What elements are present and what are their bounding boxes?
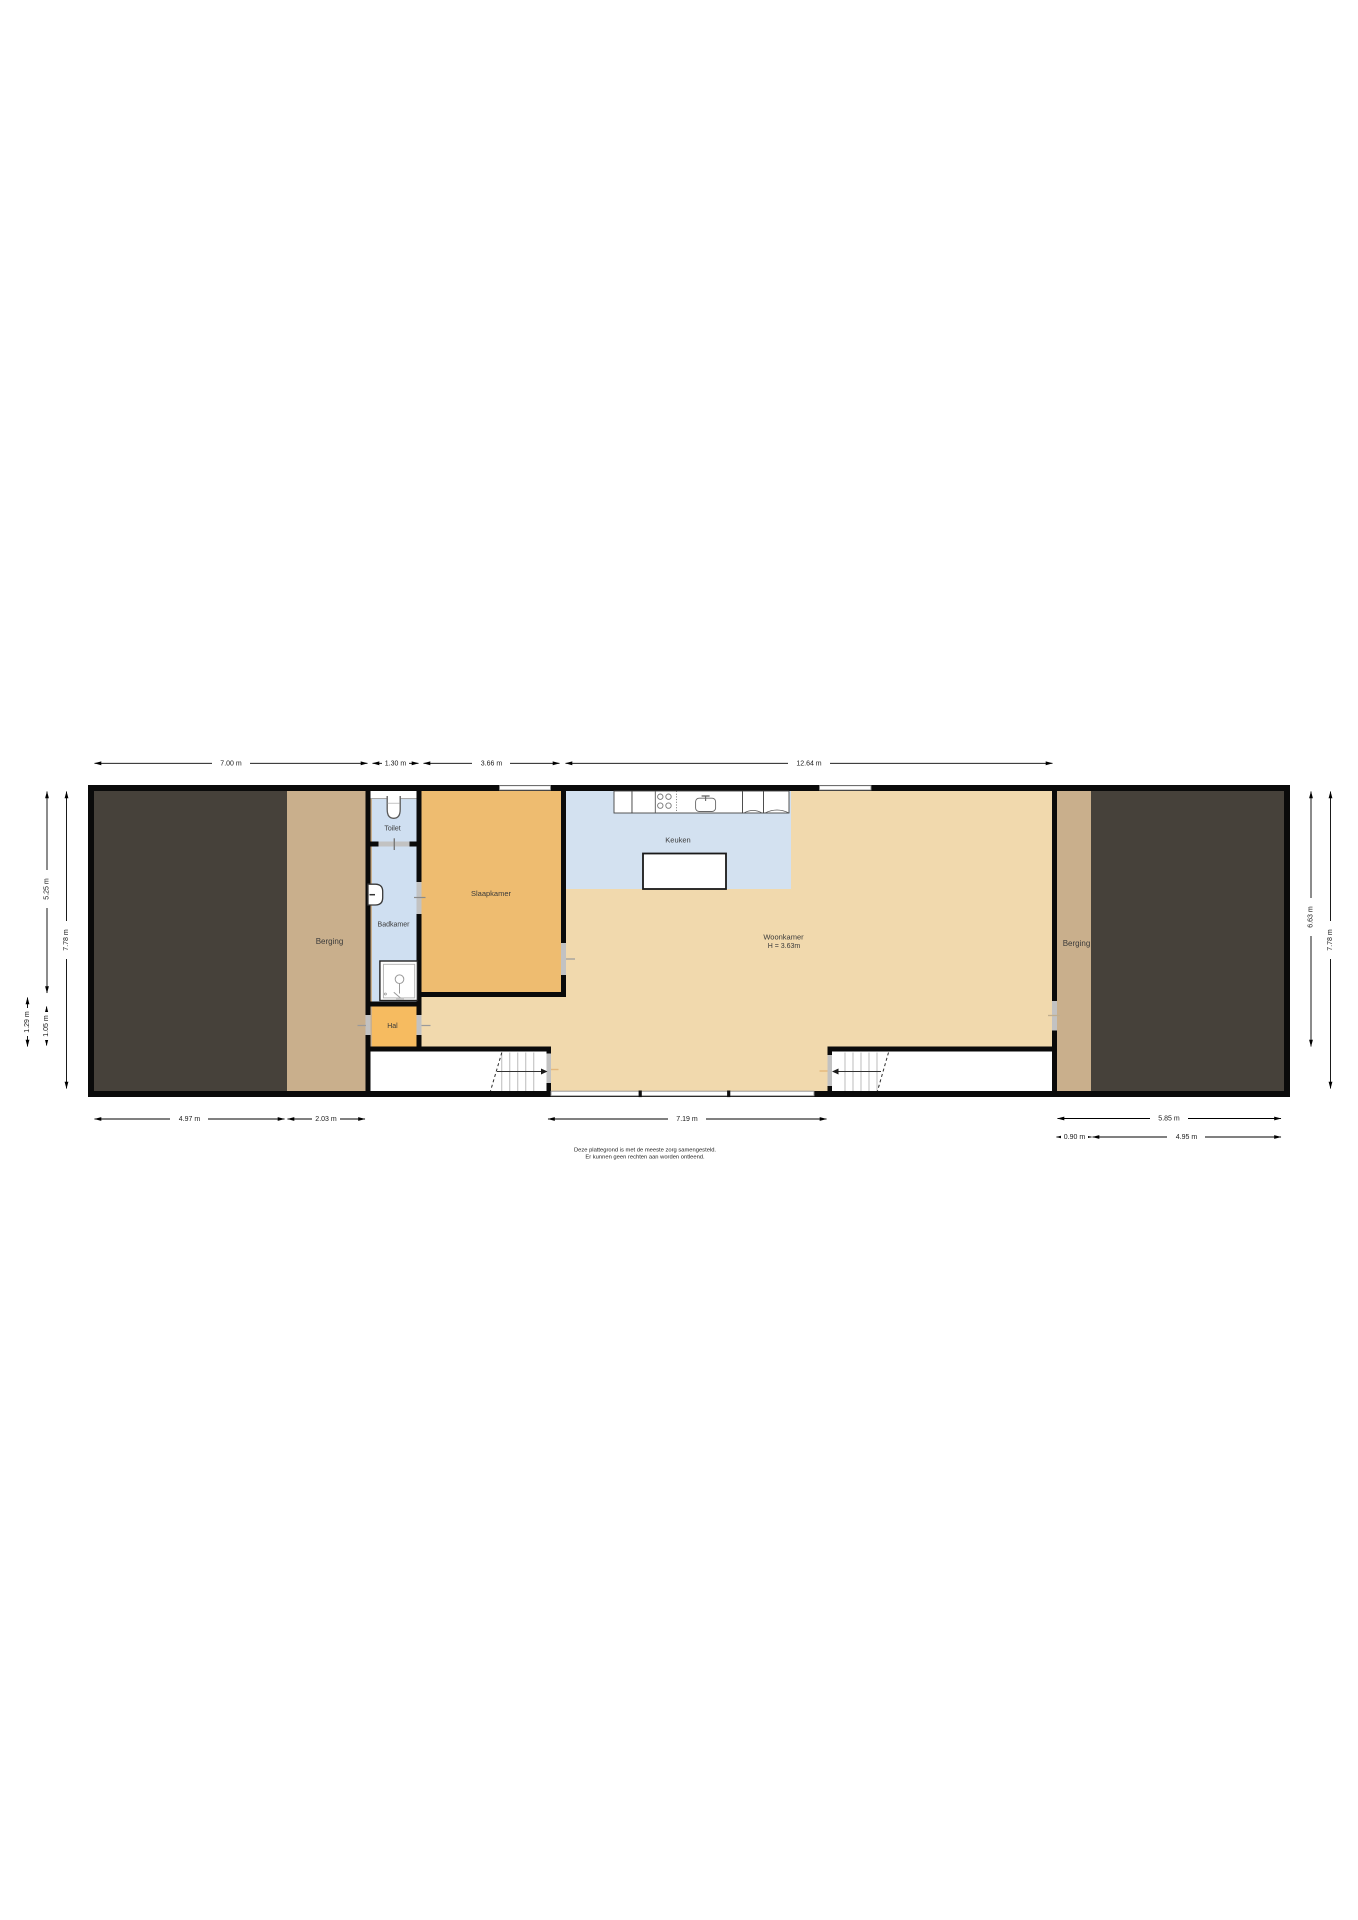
svg-text:Toilet: Toilet [384, 826, 400, 833]
svg-text:Er kunnen geen rechten aan wor: Er kunnen geen rechten aan worden ontlee… [585, 1155, 705, 1161]
svg-text:4.97 m: 4.97 m [179, 1116, 201, 1123]
svg-text:Keuken: Keuken [665, 836, 690, 845]
svg-text:Berging: Berging [316, 937, 344, 946]
svg-text:4.95 m: 4.95 m [1176, 1134, 1198, 1141]
svg-text:5.85 m: 5.85 m [1158, 1116, 1180, 1123]
svg-text:12.64 m: 12.64 m [796, 760, 821, 767]
svg-text:1.05 m: 1.05 m [43, 1015, 50, 1037]
svg-text:1.29 m: 1.29 m [24, 1011, 31, 1033]
svg-text:3.66 m: 3.66 m [481, 760, 503, 767]
svg-text:H = 3.63m: H = 3.63m [768, 943, 801, 950]
svg-text:Hal: Hal [387, 1023, 398, 1030]
svg-text:1.30 m: 1.30 m [385, 760, 407, 767]
svg-text:7.00 m: 7.00 m [220, 760, 242, 767]
svg-text:Slaapkamer: Slaapkamer [471, 889, 512, 898]
svg-text:2.03 m: 2.03 m [315, 1116, 337, 1123]
svg-text:6.63 m: 6.63 m [1308, 906, 1315, 928]
svg-text:7.78 m: 7.78 m [1327, 929, 1334, 951]
svg-text:Woonkamer: Woonkamer [763, 933, 804, 942]
svg-text:Badkamer: Badkamer [378, 922, 411, 929]
svg-text:7.78 m: 7.78 m [63, 929, 70, 951]
svg-text:Berging: Berging [1063, 939, 1091, 948]
svg-text:0.90 m: 0.90 m [1064, 1134, 1086, 1141]
svg-text:7.19 m: 7.19 m [676, 1116, 698, 1123]
svg-text:Deze plattegrond is met de mee: Deze plattegrond is met de meeste zorg s… [574, 1148, 716, 1154]
svg-text:5.25 m: 5.25 m [44, 878, 51, 900]
